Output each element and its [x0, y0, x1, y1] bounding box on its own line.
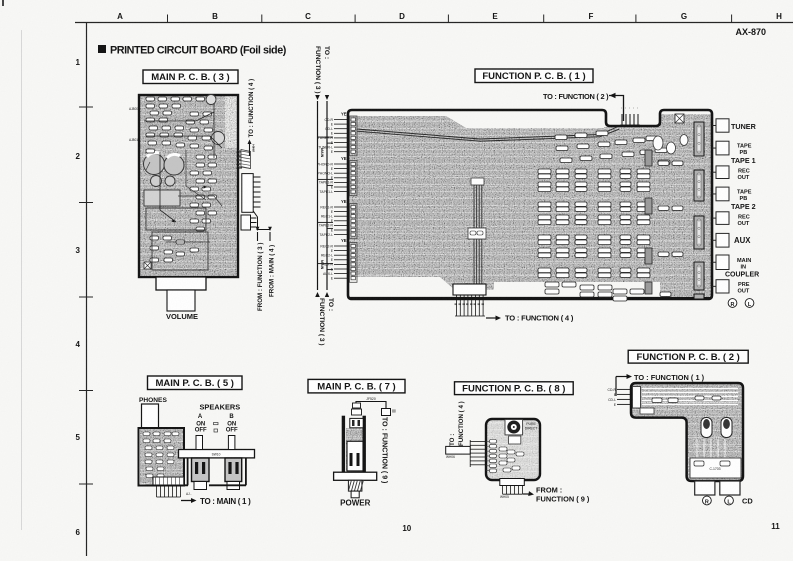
svg-text:TO : MAIN ( 1 ): TO : MAIN ( 1 ): [200, 497, 251, 506]
svg-text:CD-R: CD-R: [325, 118, 334, 122]
svg-text:E: E: [331, 277, 334, 281]
svg-text:E: E: [331, 167, 334, 171]
svg-text:TAPE1-L: TAPE1-L: [319, 190, 333, 194]
svg-text:··: ··: [620, 107, 623, 109]
svg-text:OFF: OFF: [226, 428, 238, 434]
svg-text:FROM : FUNCTION ( 3 ): FROM : FUNCTION ( 3 ): [257, 243, 264, 311]
svg-text:WH05: WH05: [500, 495, 509, 499]
svg-text:YE: YE: [341, 112, 347, 117]
svg-text:E: E: [331, 185, 334, 189]
svg-text:E: E: [331, 210, 334, 214]
svg-text:E: E: [331, 258, 334, 262]
svg-text:4: 4: [76, 340, 81, 349]
svg-text:AUX: AUX: [734, 236, 751, 245]
svg-text:IN: IN: [741, 265, 747, 271]
svg-text:▤: ▤: [392, 408, 396, 413]
svg-text:E: E: [331, 249, 334, 253]
svg-text:|||: |||: [454, 303, 458, 305]
svg-text:PHONO-R: PHONO-R: [317, 162, 334, 166]
svg-text:|||: |||: [477, 303, 481, 305]
svg-text:VOLUME: VOLUME: [166, 312, 198, 321]
svg-text:CD-L: CD-L: [325, 127, 333, 131]
svg-text:TO : FUNCTION ( 2 ): TO : FUNCTION ( 2 ): [543, 92, 609, 101]
svg-text:WH06: WH06: [446, 455, 455, 459]
svg-text:TAPE 2: TAPE 2: [731, 202, 756, 211]
svg-text:··: ··: [632, 107, 635, 109]
svg-text:POWER: POWER: [340, 499, 370, 508]
svg-text:JF520: JF520: [366, 397, 376, 401]
svg-text:D: D: [399, 12, 405, 21]
svg-text:TUNER: TUNER: [731, 122, 757, 131]
svg-text:AJ800: AJ800: [129, 107, 138, 111]
svg-text:PHONO-L: PHONO-L: [318, 172, 334, 176]
svg-text:E: E: [492, 12, 498, 21]
svg-text:FUNCTION ( 9 ): FUNCTION ( 9 ): [536, 495, 590, 504]
svg-text:|||: |||: [473, 303, 477, 305]
svg-text:PHONES: PHONES: [139, 397, 167, 404]
svg-text:CD-R: CD-R: [608, 388, 617, 392]
svg-text:TAPE: TAPE: [737, 144, 752, 150]
svg-text:TAPE2-R: TAPE2-R: [319, 224, 334, 228]
svg-text:E: E: [331, 122, 334, 126]
svg-text:WH04: WH04: [252, 144, 256, 152]
svg-text:PURE: PURE: [526, 422, 536, 426]
svg-text:|||: |||: [462, 303, 466, 305]
svg-text:MAIN P. C. B. ( 7 ): MAIN P. C. B. ( 7 ): [317, 381, 395, 392]
svg-text:TO : FUNCTION ( 1 ): TO : FUNCTION ( 1 ): [634, 373, 705, 382]
svg-text:1: 1: [76, 58, 81, 67]
svg-text:··: ··: [636, 107, 639, 109]
svg-text:TAPE2-L: TAPE2-L: [319, 233, 333, 237]
svg-text:YE: YE: [341, 238, 347, 243]
svg-text:ON: ON: [227, 421, 236, 427]
svg-text:REC: REC: [738, 169, 750, 175]
svg-text:OFF: OFF: [195, 428, 207, 434]
svg-text:B: B: [212, 12, 218, 21]
svg-text:C: C: [305, 12, 311, 21]
svg-text:AJ..: AJ..: [186, 492, 192, 496]
svg-text:FUNCTION P. C. B. ( 2 ): FUNCTION P. C. B. ( 2 ): [637, 352, 740, 363]
svg-text:··: ··: [624, 107, 627, 109]
svg-text:11: 11: [771, 522, 780, 531]
svg-text:2: 2: [76, 152, 81, 161]
svg-text:COUPLER: COUPLER: [725, 272, 759, 279]
svg-text:F: F: [589, 12, 594, 21]
svg-text:E: E: [331, 150, 334, 154]
svg-text:SPEAKERS: SPEAKERS: [200, 403, 241, 412]
svg-text:TAPE: TAPE: [737, 190, 752, 196]
svg-text:AX-870: AX-870: [735, 27, 766, 37]
svg-text:FROM : MAIN ( 4 ): FROM : MAIN ( 4 ): [269, 245, 276, 297]
svg-text:R: R: [731, 302, 735, 308]
svg-text:10: 10: [402, 524, 411, 533]
svg-text:FUNCTION P. C. B. ( 8 ): FUNCTION P. C. B. ( 8 ): [462, 383, 565, 394]
svg-text:E: E: [614, 403, 617, 407]
svg-text:TO : FUNCTION ( 9 ): TO : FUNCTION ( 9 ): [381, 417, 388, 483]
svg-text:CD: CD: [742, 497, 753, 506]
svg-text:MAIN: MAIN: [320, 260, 324, 270]
svg-text:TAPE1-R: TAPE1-R: [319, 181, 334, 185]
svg-text:AJ801: AJ801: [129, 138, 138, 142]
svg-text:MAIN: MAIN: [737, 258, 751, 264]
svg-text:FROM :: FROM :: [536, 486, 562, 495]
svg-text:MAIN P. C. B. ( 5 ): MAIN P. C. B. ( 5 ): [155, 378, 233, 389]
svg-text:B: B: [229, 414, 234, 420]
svg-text:AUX-L: AUX-L: [323, 272, 333, 276]
svg-text:MAIN P. C. B. ( 3 ): MAIN P. C. B. ( 3 ): [151, 72, 229, 83]
svg-text:PRINTED CIRCUIT BOARD (Foil si: PRINTED CIRCUIT BOARD (Foil side): [110, 45, 287, 57]
svg-text:R: R: [705, 499, 709, 505]
svg-text:A: A: [198, 414, 203, 420]
svg-text:OUT: OUT: [738, 175, 750, 181]
svg-text:E: E: [331, 132, 334, 136]
svg-text:MAIN: MAIN: [320, 148, 324, 158]
svg-text:TO : FUNCTION ( 4 ): TO : FUNCTION ( 4 ): [248, 79, 255, 138]
svg-text:3: 3: [76, 246, 81, 255]
svg-text:C-1703: C-1703: [709, 467, 720, 471]
svg-text:OUT: OUT: [738, 289, 750, 295]
svg-text:REC: REC: [738, 215, 750, 221]
svg-text:OUT: OUT: [738, 221, 750, 227]
svg-text:YE: YE: [341, 156, 347, 161]
svg-text:ON: ON: [196, 421, 205, 427]
svg-text:YE: YE: [341, 199, 347, 204]
svg-text:DIRECT: DIRECT: [525, 427, 538, 431]
svg-text:H: H: [776, 12, 782, 21]
svg-text:6: 6: [76, 528, 81, 537]
svg-text:TO : FUNCTION ( 4 ): TO : FUNCTION ( 4 ): [505, 314, 574, 323]
svg-text:A: A: [117, 12, 123, 21]
svg-text:|||: |||: [481, 303, 485, 305]
svg-text:PRE: PRE: [738, 282, 750, 288]
svg-text:|||: |||: [466, 303, 470, 305]
svg-text:CD-L: CD-L: [608, 398, 616, 402]
svg-text:|||: |||: [469, 303, 473, 305]
svg-text:··: ··: [628, 107, 631, 109]
svg-text:TAPE 1: TAPE 1: [731, 156, 756, 165]
svg-text:SW10: SW10: [212, 452, 221, 456]
svg-text:E: E: [331, 228, 334, 232]
svg-text:|||: |||: [458, 303, 462, 305]
svg-text:G: G: [681, 12, 687, 21]
svg-text:FUNCTION P. C. B. ( 1 ): FUNCTION P. C. B. ( 1 ): [482, 71, 585, 82]
svg-text:5: 5: [76, 433, 81, 442]
